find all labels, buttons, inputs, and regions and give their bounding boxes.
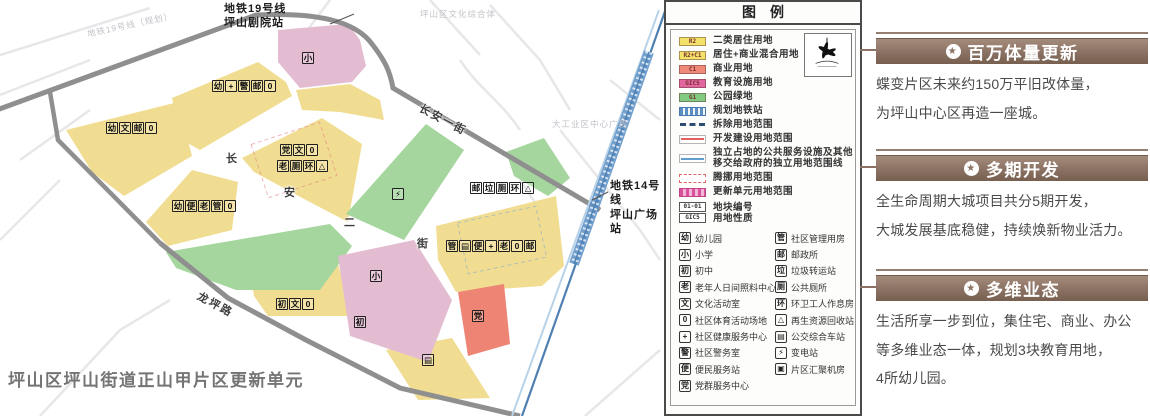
landuse-color-chip: G1	[679, 93, 706, 102]
facility-label: 社区健康服务中心	[695, 330, 767, 343]
facility-label: 党群服务中心	[695, 379, 749, 392]
plot-number-label: 地块编号	[713, 202, 753, 213]
facility-label: 垃圾转运站	[791, 264, 836, 277]
facility-row: 文文化活动室	[679, 296, 775, 312]
panel-connector-line	[860, 49, 877, 51]
facility-row: +社区健康服务中心	[679, 328, 775, 344]
star-icon: ★	[946, 44, 961, 59]
facility-icon: 垃	[775, 265, 787, 277]
facility-label: 社区警务室	[695, 346, 740, 359]
legend-row: G1公园绿地	[679, 90, 855, 104]
panel-header: ★ 多期开发	[876, 155, 1148, 181]
landuse-color-chip: GIC5	[679, 79, 706, 88]
facility-row: 党党群服务中心	[679, 378, 775, 394]
facility-icon: △	[775, 314, 787, 326]
facility-icon: 邮	[775, 249, 787, 261]
legend-label: 腾挪用地范围	[713, 173, 773, 184]
facility-icon: 警	[679, 347, 691, 359]
panel-title: 多期开发	[986, 156, 1060, 181]
poster: 地铁19号线 坪山剧院站地铁19号线（规划）长安一街长安二街龙坪路地铁14号线 …	[0, 0, 1150, 416]
facility-label: 再生资源回收站	[791, 314, 854, 327]
legend-label: 居住+商业混合用地	[713, 50, 799, 61]
legend-label: 开发建设用地范围	[713, 134, 793, 145]
panel-topline	[876, 149, 1148, 151]
facility-label: 片区汇聚机房	[791, 363, 845, 376]
panel-title: 百万体量更新	[968, 39, 1079, 64]
panel-topline	[876, 32, 1148, 34]
facility-icon: ▤	[775, 331, 787, 343]
facility-label: 初中	[695, 264, 713, 277]
panel-connector-line	[860, 286, 877, 288]
panel-header: ★ 多维业态	[876, 275, 1148, 301]
facility-label: 邮政所	[791, 248, 818, 261]
facility-legend: 幼幼儿园小小学初初中老老年人日间照料中心文文化活动室0社区体育活动场地+社区健康…	[679, 230, 855, 394]
plot-nature-chip: GIC5	[679, 213, 706, 223]
facility-row: 环环卫工人作息房	[775, 296, 855, 312]
legend-label: 公园绿地	[713, 92, 753, 103]
north-arrow-logo	[804, 33, 852, 77]
legend-row: 规划地铁站	[679, 104, 855, 118]
legend-symbol-unit-boundary	[679, 188, 706, 197]
legend-row: 腾挪用地范围	[679, 171, 855, 185]
facility-row: ▣片区汇聚机房	[775, 361, 855, 377]
facility-icon: 环	[775, 298, 787, 310]
facility-label: 小学	[695, 248, 713, 261]
legend-symbol-relocate	[679, 174, 706, 183]
legend-row: GIC5教育设施用地	[679, 76, 855, 90]
facility-row: 初初中	[679, 263, 775, 279]
legend-label: 更新单元用地范围	[713, 187, 793, 198]
legend-panel: 图例 R2二类居住用地R2+C1居住+商业混合用地C1商业用地GIC5教育设施用…	[664, 0, 862, 416]
facility-label: 便民服务站	[695, 363, 740, 376]
facility-label: 环卫工人作息房	[791, 297, 854, 310]
legend-row: 更新单元用地范围	[679, 185, 855, 199]
plot-number-chips: 01-01 GIC5	[679, 202, 706, 223]
star-icon: ★	[964, 161, 979, 176]
panel-body: 蝶变片区未来约150万平旧改体量， 为坪山中心区再造一座城。	[876, 70, 1148, 127]
landuse-color-chip: R2+C1	[679, 51, 706, 60]
facility-row: ⚡变电站	[775, 345, 855, 361]
plot-nature-label: 用地性质	[713, 213, 753, 224]
info-panel-phases: ★ 多期开发 全生命周期大城项目共分5期开发， 大城发展基底稳健，持续焕新物业活…	[876, 149, 1148, 244]
panel-body: 全生命周期大城项目共分5期开发， 大城发展基底稳健，持续焕新物业活力。	[876, 187, 1148, 244]
facility-row: 警社区警务室	[679, 345, 775, 361]
plot-number-chip: 01-01	[679, 202, 706, 212]
landuse-color-chip: R2	[679, 37, 706, 46]
facility-icon: 小	[679, 249, 691, 261]
facility-label: 公交综合车站	[791, 330, 845, 343]
facility-label: 社区体育活动场地	[695, 314, 767, 327]
legend-label: 商业用地	[713, 64, 753, 75]
facility-row: 便便民服务站	[679, 361, 775, 377]
legend-row: 独立占地的公共服务设施及其他 移交给政府的独立用地范围线	[679, 146, 855, 171]
facility-row: ▤公交综合车站	[775, 328, 855, 344]
legend-label: 二类居住用地	[713, 36, 773, 47]
plot-number-row: 01-01 GIC5 地块编号 用地性质	[679, 199, 855, 226]
facility-icon: 党	[679, 380, 691, 392]
panel-topline	[876, 269, 1148, 271]
facility-label: 公共厕所	[791, 281, 827, 294]
facility-icon: ⚡	[775, 347, 787, 359]
facility-row: 小小学	[679, 246, 775, 262]
legend-label: 规划地铁站	[713, 106, 763, 117]
facility-icon: 幼	[679, 232, 691, 244]
facility-icon: 0	[679, 314, 691, 326]
map-canvas: 地铁19号线 坪山剧院站地铁19号线（规划）长安一街长安二街龙坪路地铁14号线 …	[0, 0, 665, 416]
legend-symbol-develop	[679, 135, 706, 144]
panel-title: 多维业态	[986, 276, 1060, 301]
facility-label: 社区管理用房	[791, 232, 845, 245]
facility-col-right: 管社区管理用房邮邮政所垃垃圾转运站厕公共厕所环环卫工人作息房△再生资源回收站▤公…	[775, 230, 855, 394]
star-icon: ★	[964, 281, 979, 296]
panel-body: 生活所享一步到位，集住宅、商业、办公 等多维业态一体，规划3块教育用地， 4所幼…	[876, 307, 1148, 393]
facility-icon: 文	[679, 298, 691, 310]
facility-label: 幼儿园	[695, 232, 722, 245]
facility-icon: 便	[679, 363, 691, 375]
legend-body: R2二类居住用地R2+C1居住+商业混合用地C1商业用地GIC5教育设施用地G1…	[670, 29, 856, 406]
facility-row: 0社区体育活动场地	[679, 312, 775, 328]
facility-row: 管社区管理用房	[775, 230, 855, 246]
legend-symbol-independent	[679, 154, 706, 163]
facility-label: 老年人日间照料中心	[695, 281, 776, 294]
facility-col-left: 幼幼儿园小小学初初中老老年人日间照料中心文文化活动室0社区体育活动场地+社区健康…	[679, 230, 775, 394]
info-panel-mixed-use: ★ 多维业态 生活所享一步到位，集住宅、商业、办公 等多维业态一体，规划3块教育…	[876, 269, 1148, 393]
landuse-color-chip: C1	[679, 65, 706, 74]
facility-icon: ▣	[775, 363, 787, 375]
facility-row: 幼幼儿园	[679, 230, 775, 246]
legend-title: 图例	[666, 2, 860, 25]
facility-icon: 厕	[775, 281, 787, 293]
legend-label: 教育设施用地	[713, 78, 773, 89]
facility-row: 厕公共厕所	[775, 279, 855, 295]
legend-label: 独立占地的公共服务设施及其他 移交给政府的独立用地范围线	[713, 148, 853, 170]
legend-row: 开发建设用地范围	[679, 132, 855, 146]
legend-row: 拆除用地范围	[679, 118, 855, 132]
facility-row: 老老年人日间照料中心	[679, 279, 775, 295]
facility-row: 邮邮政所	[775, 246, 855, 262]
legend-symbol-metro-station	[679, 107, 706, 116]
panel-connector-line	[860, 166, 877, 168]
facility-icon: +	[679, 331, 691, 343]
facility-icon: 初	[679, 265, 691, 277]
legend-symbol-demolish	[679, 121, 706, 130]
facility-row: 垃垃圾转运站	[775, 263, 855, 279]
facility-label: 文化活动室	[695, 297, 740, 310]
plot-number-labels: 地块编号 用地性质	[713, 202, 753, 224]
map-svg	[0, 0, 665, 416]
facility-icon: 老	[679, 281, 691, 293]
facility-label: 变电站	[791, 346, 818, 359]
panel-header: ★ 百万体量更新	[876, 38, 1148, 64]
facility-row: △再生资源回收站	[775, 312, 855, 328]
legend-label: 拆除用地范围	[713, 120, 773, 131]
facility-icon: 管	[775, 232, 787, 244]
info-panel-volume: ★ 百万体量更新 蝶变片区未来约150万平旧改体量， 为坪山中心区再造一座城。	[876, 32, 1148, 127]
map-caption: 坪山区坪山街道正山甲片区更新单元	[8, 366, 304, 391]
